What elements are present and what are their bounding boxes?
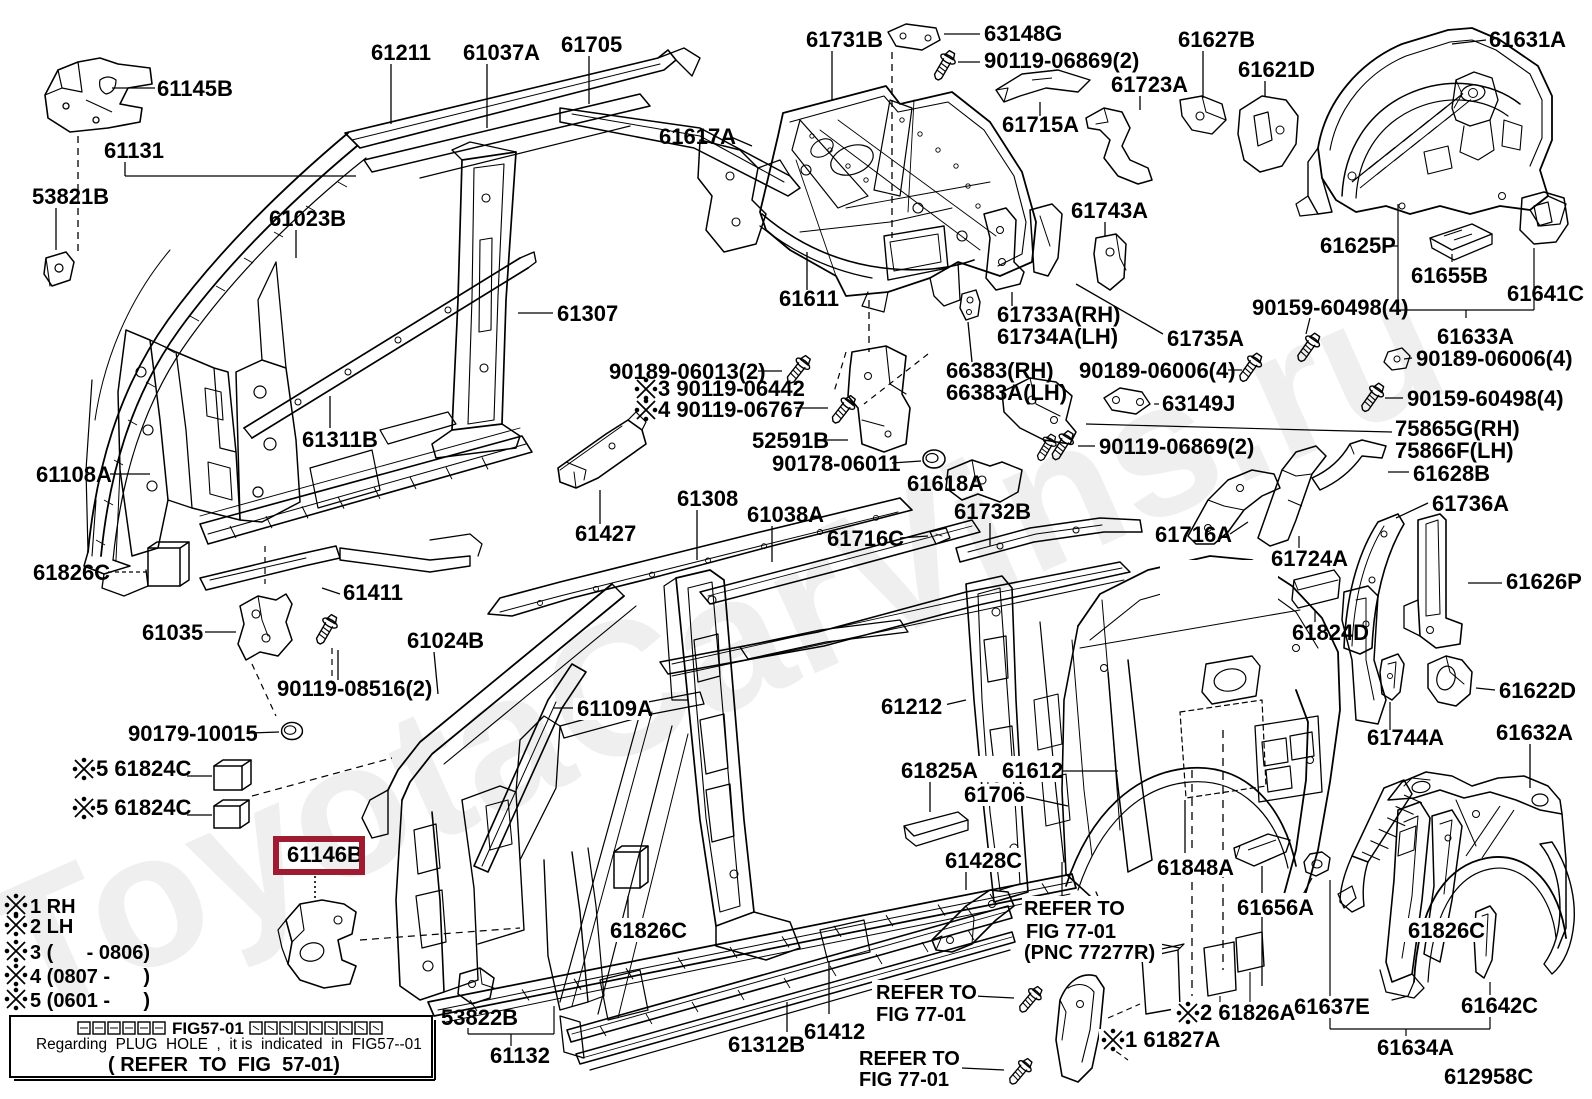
svg-text:61825A: 61825A bbox=[901, 758, 978, 783]
svg-text:2 LH: 2 LH bbox=[30, 916, 73, 938]
svg-text:61826C: 61826C bbox=[1408, 918, 1485, 943]
svg-text:61736A: 61736A bbox=[1432, 491, 1509, 516]
svg-text:75866F(LH): 75866F(LH) bbox=[1395, 438, 1514, 463]
svg-text:61612: 61612 bbox=[1002, 758, 1063, 783]
svg-text:90179-10015: 90179-10015 bbox=[128, 721, 258, 746]
svg-text:61641C: 61641C bbox=[1507, 281, 1584, 306]
svg-text:53821B: 53821B bbox=[32, 184, 109, 209]
svg-text:61631A: 61631A bbox=[1489, 27, 1566, 52]
svg-text:61428C: 61428C bbox=[945, 848, 1022, 873]
svg-text:61626P: 61626P bbox=[1506, 569, 1582, 594]
svg-text:61716C: 61716C bbox=[827, 526, 904, 551]
svg-text:61035: 61035 bbox=[142, 620, 203, 645]
svg-text:3 ( - 0806): 3 ( - 0806) bbox=[30, 942, 150, 964]
svg-text:61632A: 61632A bbox=[1496, 720, 1573, 745]
svg-text:61642C: 61642C bbox=[1461, 993, 1538, 1018]
svg-text:61656A: 61656A bbox=[1237, 895, 1314, 920]
svg-text:FIG 77-01: FIG 77-01 bbox=[1026, 921, 1116, 943]
svg-text:61723A: 61723A bbox=[1111, 72, 1188, 97]
svg-text:90189-06006(4): 90189-06006(4) bbox=[1079, 358, 1236, 383]
svg-text:5 (0601 - ): 5 (0601 - ) bbox=[30, 990, 150, 1012]
svg-text:61826C: 61826C bbox=[610, 918, 687, 943]
svg-text:1 61827A: 1 61827A bbox=[1125, 1027, 1221, 1052]
svg-text:66383A(LH): 66383A(LH) bbox=[946, 380, 1067, 405]
svg-text:61625P: 61625P bbox=[1320, 233, 1396, 258]
svg-text:61024B: 61024B bbox=[407, 628, 484, 653]
svg-text:61307: 61307 bbox=[557, 301, 618, 326]
svg-text:61617A: 61617A bbox=[659, 124, 736, 149]
svg-text:61628B: 61628B bbox=[1413, 461, 1490, 486]
svg-text:61308: 61308 bbox=[677, 486, 738, 511]
svg-text:90159-60498(4): 90159-60498(4) bbox=[1407, 386, 1564, 411]
svg-text:4 90119-06767: 4 90119-06767 bbox=[658, 397, 805, 422]
svg-text:61411: 61411 bbox=[343, 580, 403, 605]
svg-text:612958C: 612958C bbox=[1444, 1064, 1533, 1089]
svg-text:61743A: 61743A bbox=[1071, 198, 1148, 223]
svg-text:5 61824C: 5 61824C bbox=[96, 795, 192, 820]
svg-text:61706: 61706 bbox=[964, 782, 1025, 807]
svg-text:61637E: 61637E bbox=[1294, 994, 1370, 1019]
svg-text:Regarding PLUG HOLE , it i: Regarding PLUG HOLE , it is indicated in… bbox=[36, 1036, 422, 1053]
svg-text:61146B: 61146B bbox=[287, 842, 363, 867]
svg-text:90119-06869(2): 90119-06869(2) bbox=[984, 48, 1139, 73]
svg-text:REFER TO: REFER TO bbox=[1024, 898, 1125, 920]
svg-text:61312B: 61312B bbox=[728, 1032, 805, 1057]
svg-text:61744A: 61744A bbox=[1367, 725, 1444, 750]
svg-text:61145B: 61145B bbox=[157, 76, 233, 101]
svg-text:FIG 77-01: FIG 77-01 bbox=[876, 1004, 966, 1026]
svg-text:61731B: 61731B bbox=[806, 27, 883, 52]
svg-text:61212: 61212 bbox=[881, 694, 942, 719]
svg-text:2 61826A: 2 61826A bbox=[1200, 1000, 1296, 1025]
svg-text:61734A(LH): 61734A(LH) bbox=[997, 324, 1118, 349]
svg-text:5 61824C: 5 61824C bbox=[96, 756, 192, 781]
svg-text:61627B: 61627B bbox=[1178, 27, 1255, 52]
svg-text:61038A: 61038A bbox=[747, 502, 824, 527]
svg-text:( REFER TO FIG 57-01): ( REFER TO FIG 57-01) bbox=[108, 1054, 340, 1076]
svg-text:90159-60498(4): 90159-60498(4) bbox=[1252, 295, 1409, 320]
svg-text:61311B: 61311B bbox=[302, 427, 378, 452]
svg-text:61655B: 61655B bbox=[1411, 263, 1488, 288]
svg-text:53822B: 53822B bbox=[441, 1005, 518, 1030]
svg-text:63149J: 63149J bbox=[1162, 391, 1235, 416]
svg-text:61705: 61705 bbox=[561, 32, 622, 57]
svg-text:90119-08516(2): 90119-08516(2) bbox=[277, 676, 432, 701]
svg-text:61427: 61427 bbox=[575, 521, 636, 546]
svg-text:61611: 61611 bbox=[779, 286, 839, 311]
svg-text:90189-06006(4): 90189-06006(4) bbox=[1416, 346, 1573, 371]
svg-text:61132: 61132 bbox=[490, 1043, 550, 1068]
svg-text:61622D: 61622D bbox=[1499, 678, 1576, 703]
svg-text:61824D: 61824D bbox=[1292, 620, 1369, 645]
svg-text:61716A: 61716A bbox=[1155, 522, 1232, 547]
svg-text:61131: 61131 bbox=[104, 138, 164, 163]
svg-text:61826C: 61826C bbox=[33, 560, 110, 585]
svg-text:61732B: 61732B bbox=[954, 499, 1031, 524]
svg-text:63148G: 63148G bbox=[984, 21, 1062, 46]
svg-text:61848A: 61848A bbox=[1157, 855, 1234, 880]
svg-text:61108A: 61108A bbox=[36, 462, 112, 487]
svg-text:61634A: 61634A bbox=[1377, 1035, 1454, 1060]
svg-text:FIG 77-01: FIG 77-01 bbox=[859, 1069, 949, 1091]
svg-text:61023B: 61023B bbox=[269, 206, 346, 231]
svg-text:61037A: 61037A bbox=[463, 40, 540, 65]
svg-text:61715A: 61715A bbox=[1002, 112, 1079, 137]
svg-text:61109A: 61109A bbox=[577, 696, 653, 721]
svg-text:4 (0807 - ): 4 (0807 - ) bbox=[30, 966, 150, 988]
svg-text:1 RH: 1 RH bbox=[30, 896, 76, 918]
svg-text:61735A: 61735A bbox=[1167, 326, 1244, 351]
svg-text:90178-06011: 90178-06011 bbox=[772, 451, 900, 476]
svg-text:61412: 61412 bbox=[804, 1019, 865, 1044]
svg-text:(PNC 77277R): (PNC 77277R) bbox=[1024, 942, 1155, 964]
svg-text:REFER TO: REFER TO bbox=[859, 1048, 960, 1070]
svg-text:61621D: 61621D bbox=[1238, 57, 1315, 82]
svg-text:52591B: 52591B bbox=[752, 428, 829, 453]
svg-text:61211: 61211 bbox=[371, 40, 431, 65]
svg-text:90119-06869(2): 90119-06869(2) bbox=[1099, 434, 1254, 459]
svg-text:REFER TO: REFER TO bbox=[876, 982, 977, 1004]
svg-text:61724A: 61724A bbox=[1271, 546, 1348, 571]
svg-text:61618A: 61618A bbox=[907, 471, 984, 496]
